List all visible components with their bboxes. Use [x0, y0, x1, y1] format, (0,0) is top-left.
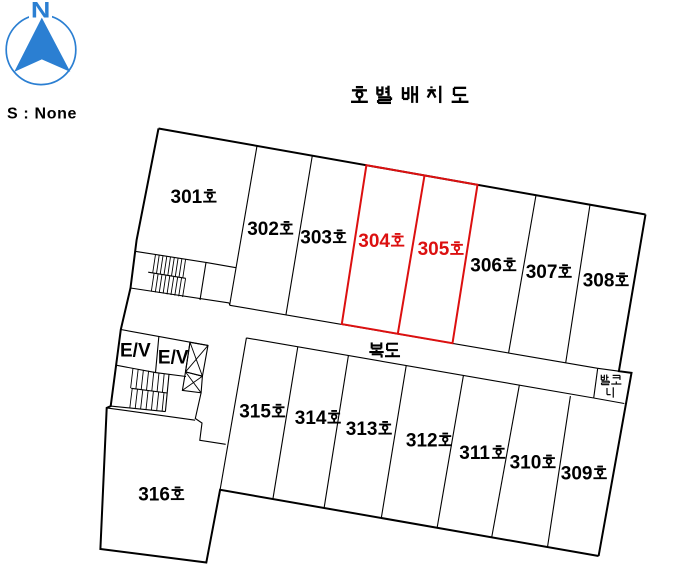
svg-text:E/V: E/V	[158, 348, 189, 369]
svg-text:309: 309	[561, 464, 593, 485]
svg-text:312: 312	[406, 431, 438, 452]
svg-text:311: 311	[459, 443, 490, 464]
svg-text:315: 315	[239, 402, 271, 423]
svg-text:314: 314	[295, 408, 327, 429]
svg-text:N: N	[31, 0, 51, 22]
svg-text:310: 310	[510, 453, 542, 474]
svg-text:313: 313	[346, 419, 378, 440]
svg-text:316: 316	[138, 484, 170, 505]
svg-text:S : None: S : None	[7, 106, 77, 123]
svg-text:304: 304	[358, 231, 390, 252]
svg-text:E/V: E/V	[120, 340, 151, 361]
svg-text:301: 301	[171, 187, 203, 208]
svg-text:308: 308	[583, 271, 615, 292]
svg-text:307: 307	[526, 262, 558, 283]
svg-text:305: 305	[418, 239, 450, 260]
svg-text:306: 306	[470, 256, 502, 277]
svg-text:302: 302	[247, 219, 279, 240]
svg-text:303: 303	[300, 227, 332, 248]
